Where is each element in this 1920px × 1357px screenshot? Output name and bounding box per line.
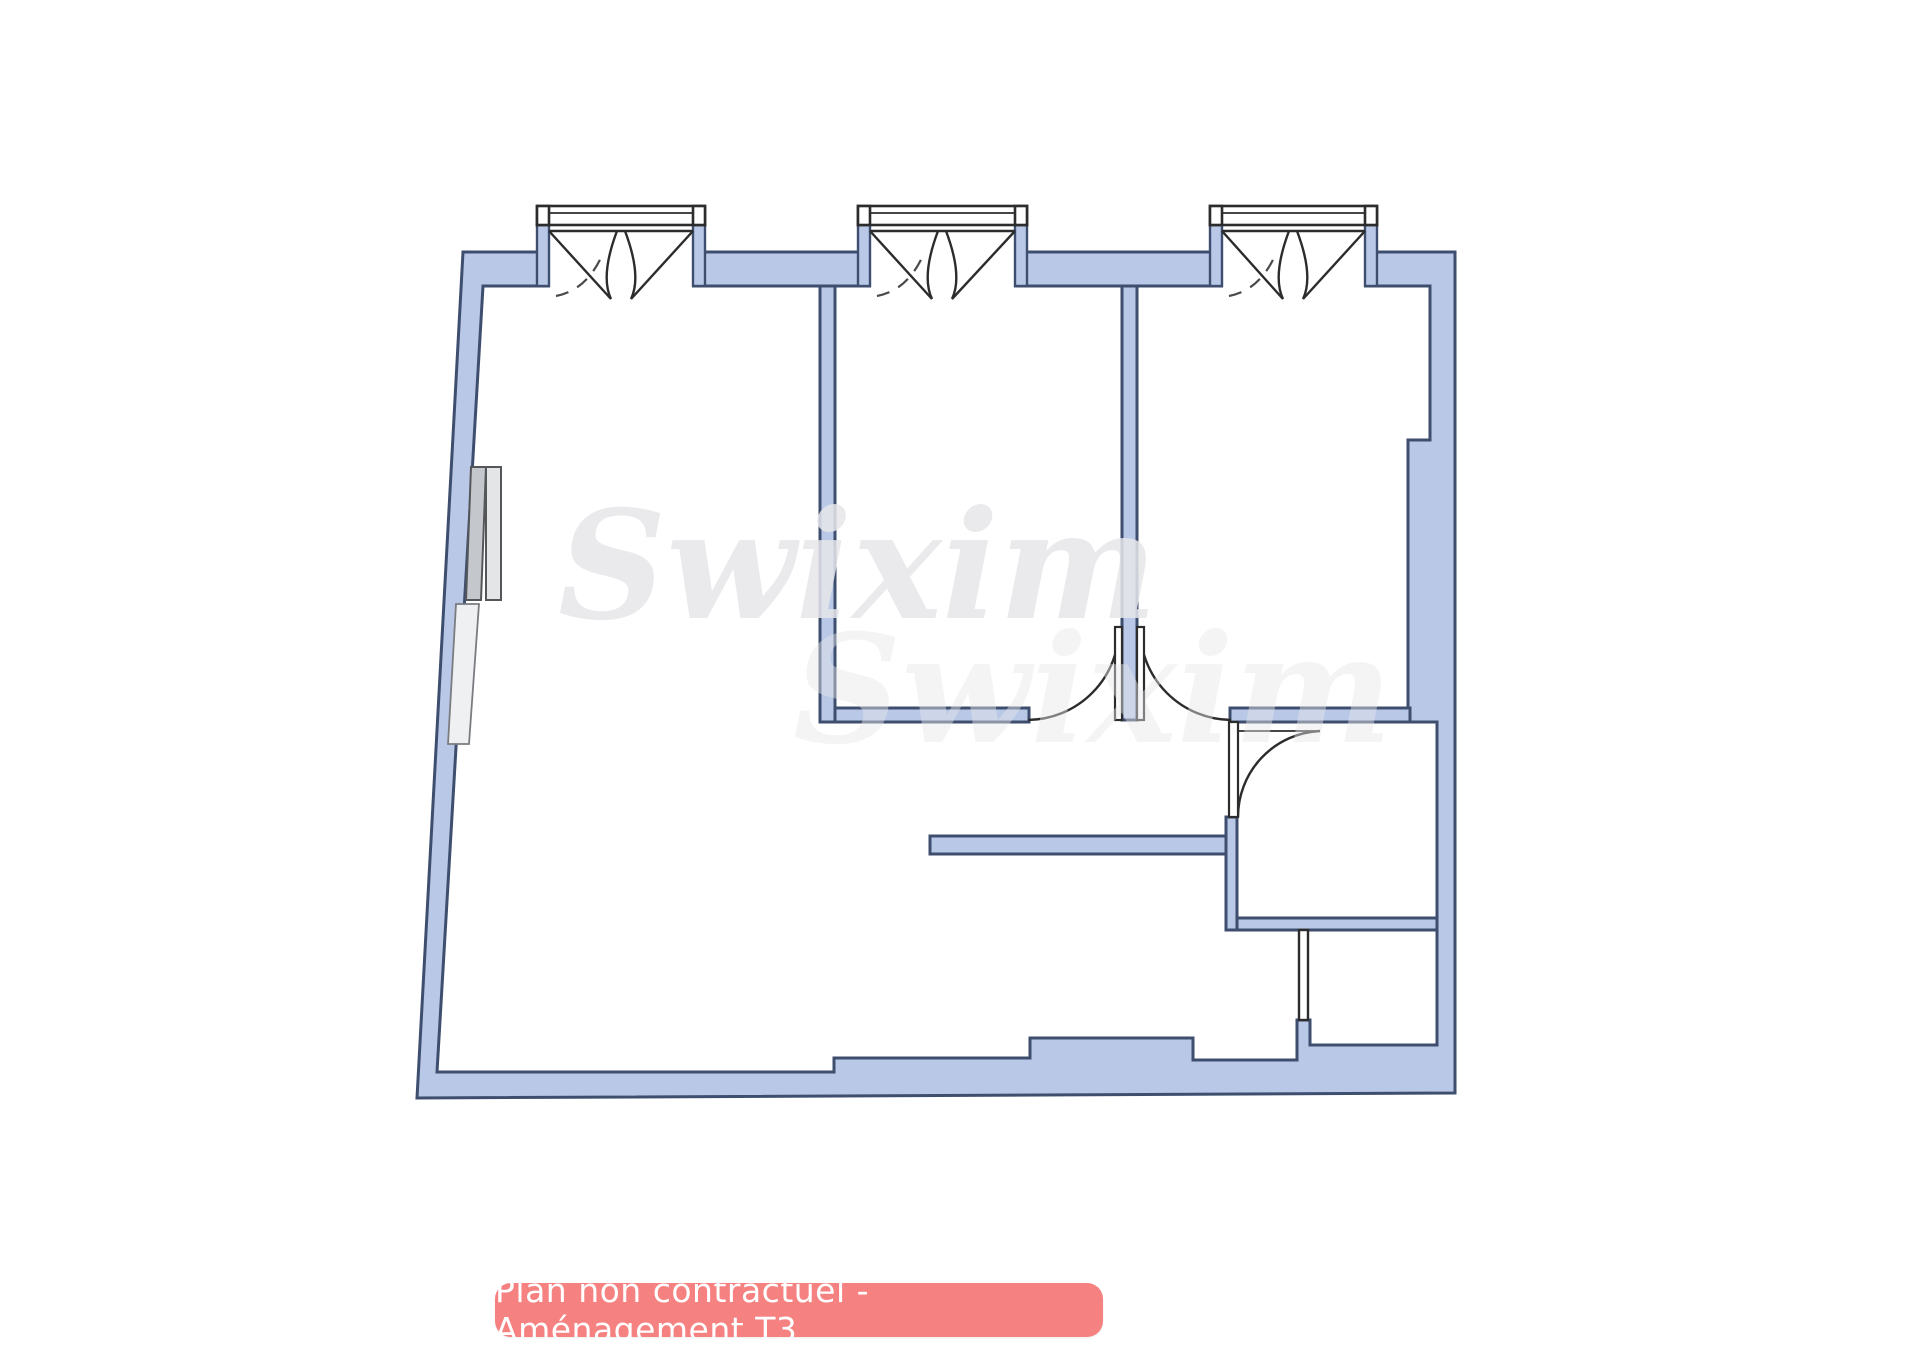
wall-bathroom-left xyxy=(1226,817,1237,930)
page: { "caption": { "label": "Plan non contra… xyxy=(0,0,1920,1357)
wall-bathroom-bottom xyxy=(1237,918,1437,930)
plan-caption-label: Plan non contractuel - Aménagement T3 xyxy=(495,1271,1103,1349)
floor-plan: Swixim Swixim xyxy=(0,0,1920,1357)
chimney-block-side xyxy=(486,467,501,600)
watermark-text: Swixim xyxy=(558,478,1158,654)
window-jamb xyxy=(1015,224,1027,286)
window-jamb xyxy=(858,224,870,286)
window-opening-2 xyxy=(872,245,1013,290)
window-jamb xyxy=(693,224,705,286)
wall-storage-partition xyxy=(1299,930,1308,1020)
window-opening-1 xyxy=(551,245,691,290)
window-opening-3 xyxy=(1224,245,1363,290)
floor-plan-container: Swixim Swixim xyxy=(0,0,1920,1357)
window-jamb xyxy=(1365,224,1377,286)
wall-hallway xyxy=(930,836,1237,854)
window-jamb xyxy=(1210,224,1222,286)
watermark: Swixim Swixim xyxy=(558,478,1393,778)
plan-caption: Plan non contractuel - Aménagement T3 xyxy=(495,1283,1103,1337)
window-jamb xyxy=(537,224,549,286)
